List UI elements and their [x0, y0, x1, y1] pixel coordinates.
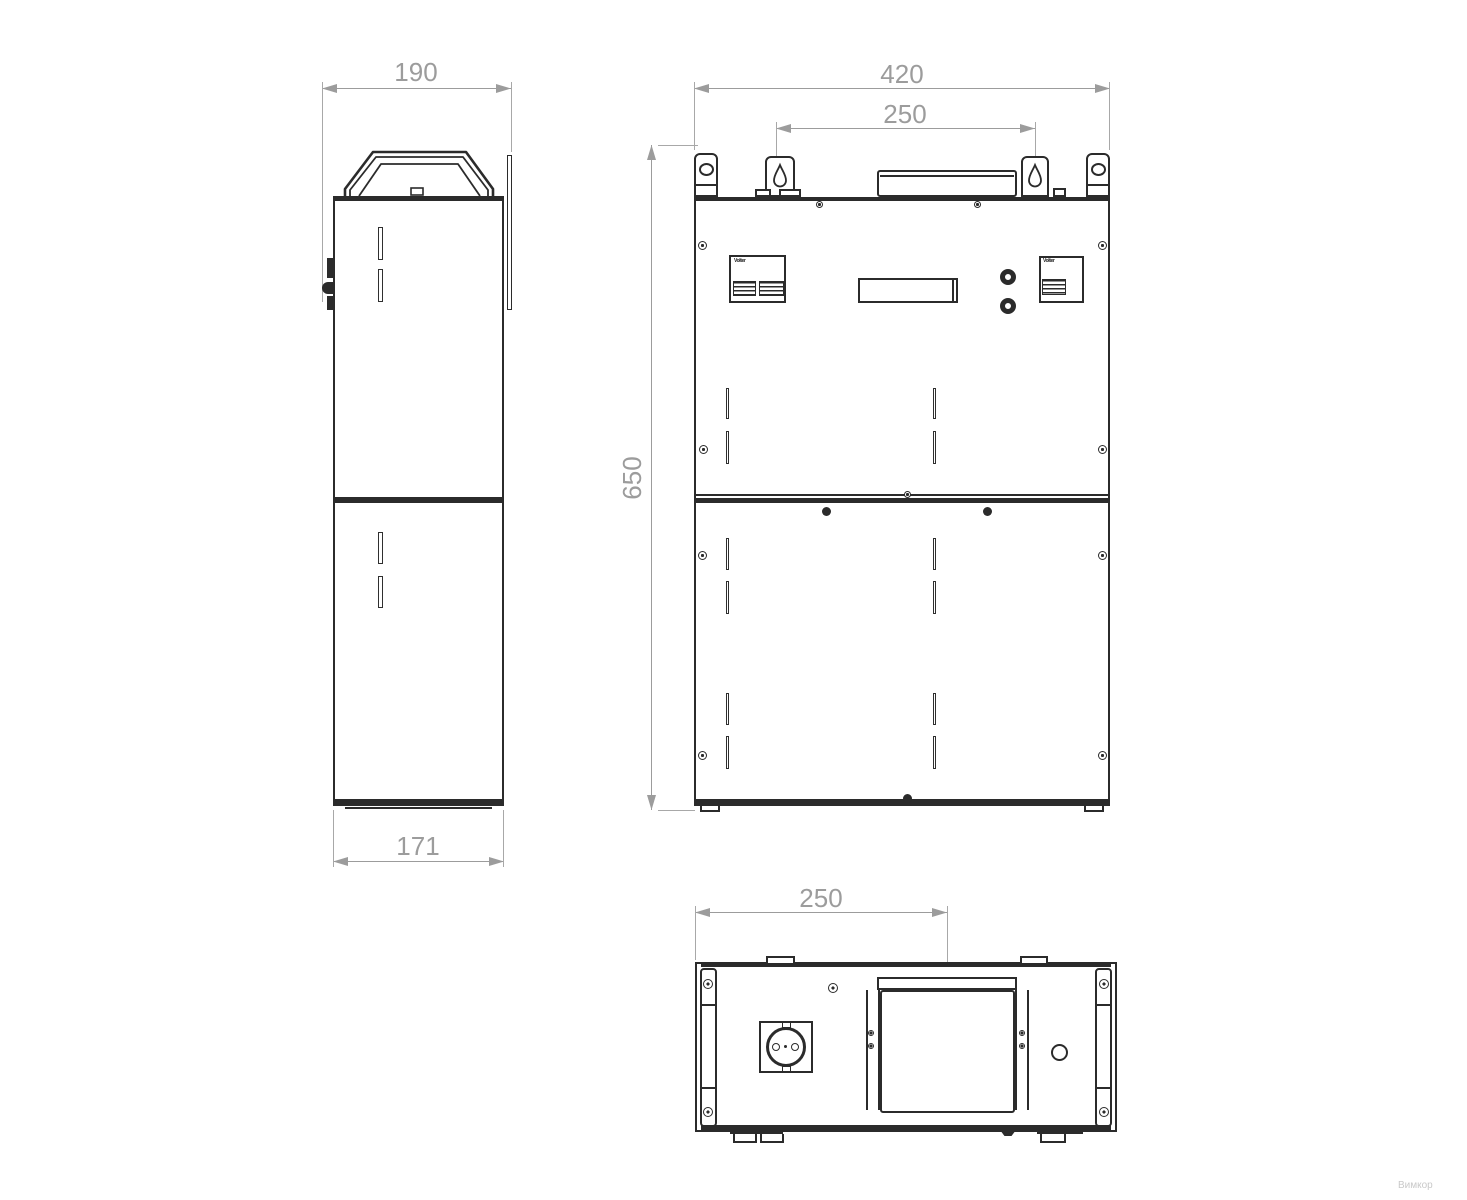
screw: [868, 1043, 874, 1049]
foot: [1084, 806, 1104, 812]
screw: [904, 491, 911, 498]
socket-pin-hole: [791, 1043, 799, 1051]
vent-grille: [726, 736, 877, 769]
extension-line: [695, 906, 696, 960]
brand-mark: Volter: [734, 259, 745, 264]
dim-mount-span-line: [776, 128, 1035, 129]
ear-line: [1087, 184, 1109, 186]
rail-line: [700, 1004, 717, 1006]
extension-line: [503, 810, 504, 867]
vent-grille: [378, 227, 466, 260]
screw: [698, 241, 707, 250]
extension-line: [658, 810, 695, 811]
dim-mount-span-label: 250: [865, 100, 945, 128]
socket-center-dot: [784, 1045, 787, 1048]
vent-grille: [726, 431, 877, 464]
vent-grille: [933, 736, 1084, 769]
arrowhead: [1095, 84, 1110, 93]
ear-line: [695, 184, 717, 186]
screw: [974, 201, 981, 208]
arrowhead: [932, 908, 947, 917]
handle-bar-line: [880, 175, 1014, 177]
vent-grille: [726, 581, 877, 614]
terminal-cover: [880, 990, 1015, 1113]
cover-flange-left: [866, 990, 880, 1110]
vent-grille: [933, 388, 1084, 419]
side-knob: [322, 282, 333, 294]
dim-front-height-line: [651, 145, 652, 810]
side-knob: [327, 258, 333, 278]
arrowhead: [647, 145, 656, 160]
screw: [1098, 445, 1107, 454]
vent-grille: [933, 581, 1084, 614]
vent-grille: [933, 431, 1084, 464]
ear-hole: [699, 163, 714, 176]
screw-filled: [903, 794, 912, 803]
control-button: [1000, 298, 1016, 314]
wall-bracket-plate: [507, 155, 512, 310]
socket-notch: [782, 1022, 791, 1028]
display-window: [858, 278, 958, 303]
cable-hole: [1051, 1044, 1068, 1061]
bottom-edge: [334, 799, 503, 804]
rail-line: [1095, 1004, 1112, 1006]
technical-drawing-sheet: 190 171: [0, 0, 1467, 1200]
screw: [703, 979, 713, 989]
screw: [1098, 551, 1107, 560]
bottom-edge: [696, 799, 1108, 806]
ear-hole: [1091, 163, 1106, 176]
dim-side-depth-label: 171: [378, 832, 458, 860]
screw-filled: [983, 507, 992, 516]
dim-front-height-label: 650: [618, 438, 646, 518]
dim-bottom-offset-label: 250: [781, 884, 861, 912]
extension-line: [658, 145, 698, 146]
breaker-toggle: [1042, 279, 1066, 295]
extension-line: [694, 82, 695, 150]
vent-grille: [933, 693, 1084, 725]
breaker-toggle: [759, 281, 784, 296]
dim-side-depth-line: [333, 861, 504, 862]
extension-line: [1109, 82, 1110, 150]
screw-filled: [822, 507, 831, 516]
panel-split-edge: [696, 498, 1108, 503]
top-edge: [701, 963, 1111, 967]
keyhole-slot: [1025, 162, 1045, 190]
screw: [1099, 1107, 1109, 1117]
vent-grille: [726, 693, 877, 725]
arrowhead: [333, 857, 348, 866]
rear-tab: [766, 956, 795, 963]
screw: [698, 751, 707, 760]
vent-grille: [378, 576, 466, 608]
foot: [700, 806, 720, 812]
screw: [698, 551, 707, 560]
vent-grille: [726, 538, 877, 570]
control-button: [1000, 269, 1016, 285]
terminal-cover-plate: [877, 977, 1017, 990]
screw: [1098, 241, 1107, 250]
panel-split-thin: [696, 494, 1108, 496]
top-edge: [333, 196, 504, 201]
side-rail-right: [1095, 968, 1112, 1127]
dim-side-width-label: 190: [376, 58, 456, 86]
screw: [828, 983, 838, 993]
side-knob: [327, 296, 333, 310]
breaker-toggle: [733, 281, 756, 296]
arrowhead: [776, 124, 791, 133]
dim-front-width-line: [694, 88, 1110, 89]
socket-pin-hole: [772, 1043, 780, 1051]
side-rail-left: [700, 968, 717, 1127]
vent-grille: [378, 269, 466, 302]
drain-notch: [1000, 1130, 1016, 1136]
extension-line: [322, 82, 323, 302]
brand-mark: Volter: [1043, 259, 1054, 264]
watermark: Вимкор: [1398, 1180, 1433, 1191]
socket-notch: [782, 1066, 791, 1072]
foot: [1040, 1134, 1066, 1143]
arrowhead: [694, 84, 709, 93]
arrowhead: [322, 84, 337, 93]
arrowhead: [489, 857, 504, 866]
extension-line: [511, 82, 512, 152]
panel-split-edge: [334, 497, 503, 503]
arrowhead: [647, 795, 656, 810]
extension-line: [333, 810, 334, 867]
arrowhead: [1020, 124, 1035, 133]
screw: [1098, 751, 1107, 760]
foot: [733, 1134, 757, 1143]
vent-grille: [726, 388, 877, 419]
rail-line: [1095, 1087, 1112, 1089]
screw: [703, 1107, 713, 1117]
arrowhead: [695, 908, 710, 917]
bracket-foot: [755, 189, 771, 197]
vent-grille: [378, 532, 466, 564]
screw: [1019, 1043, 1025, 1049]
screw: [1099, 979, 1109, 989]
vent-grille: [933, 538, 1084, 570]
foot: [760, 1134, 784, 1143]
cover-flange-right: [1015, 990, 1029, 1110]
rail-line: [700, 1087, 717, 1089]
rear-tab: [1020, 956, 1048, 963]
screw: [816, 201, 823, 208]
bracket-foot: [779, 189, 801, 197]
top-edge: [694, 197, 1110, 201]
screw: [868, 1030, 874, 1036]
arrowhead: [496, 84, 511, 93]
small-tab: [1053, 188, 1066, 197]
display-edge: [952, 280, 954, 301]
dim-front-width-label: 420: [862, 60, 942, 88]
keyhole-slot: [770, 162, 790, 190]
dim-bottom-offset-line: [695, 912, 947, 913]
carry-handle: [340, 147, 500, 197]
base-strip: [345, 807, 492, 809]
dim-side-width-line: [322, 88, 511, 89]
screw: [1019, 1030, 1025, 1036]
screw: [699, 445, 708, 454]
